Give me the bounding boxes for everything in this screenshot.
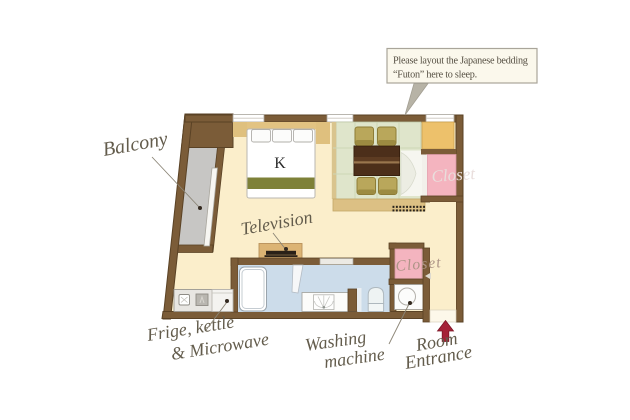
svg-text:K: K [274, 155, 286, 172]
svg-text:Please layout the Japanese bed: Please layout the Japanese bedding [393, 56, 528, 67]
svg-text:Balcony: Balcony [101, 128, 169, 161]
svg-text:Entrance: Entrance [402, 342, 473, 374]
svg-text:Closet: Closet [431, 164, 477, 186]
svg-text:“Futon” here to sleep.: “Futon” here to sleep. [393, 70, 477, 81]
